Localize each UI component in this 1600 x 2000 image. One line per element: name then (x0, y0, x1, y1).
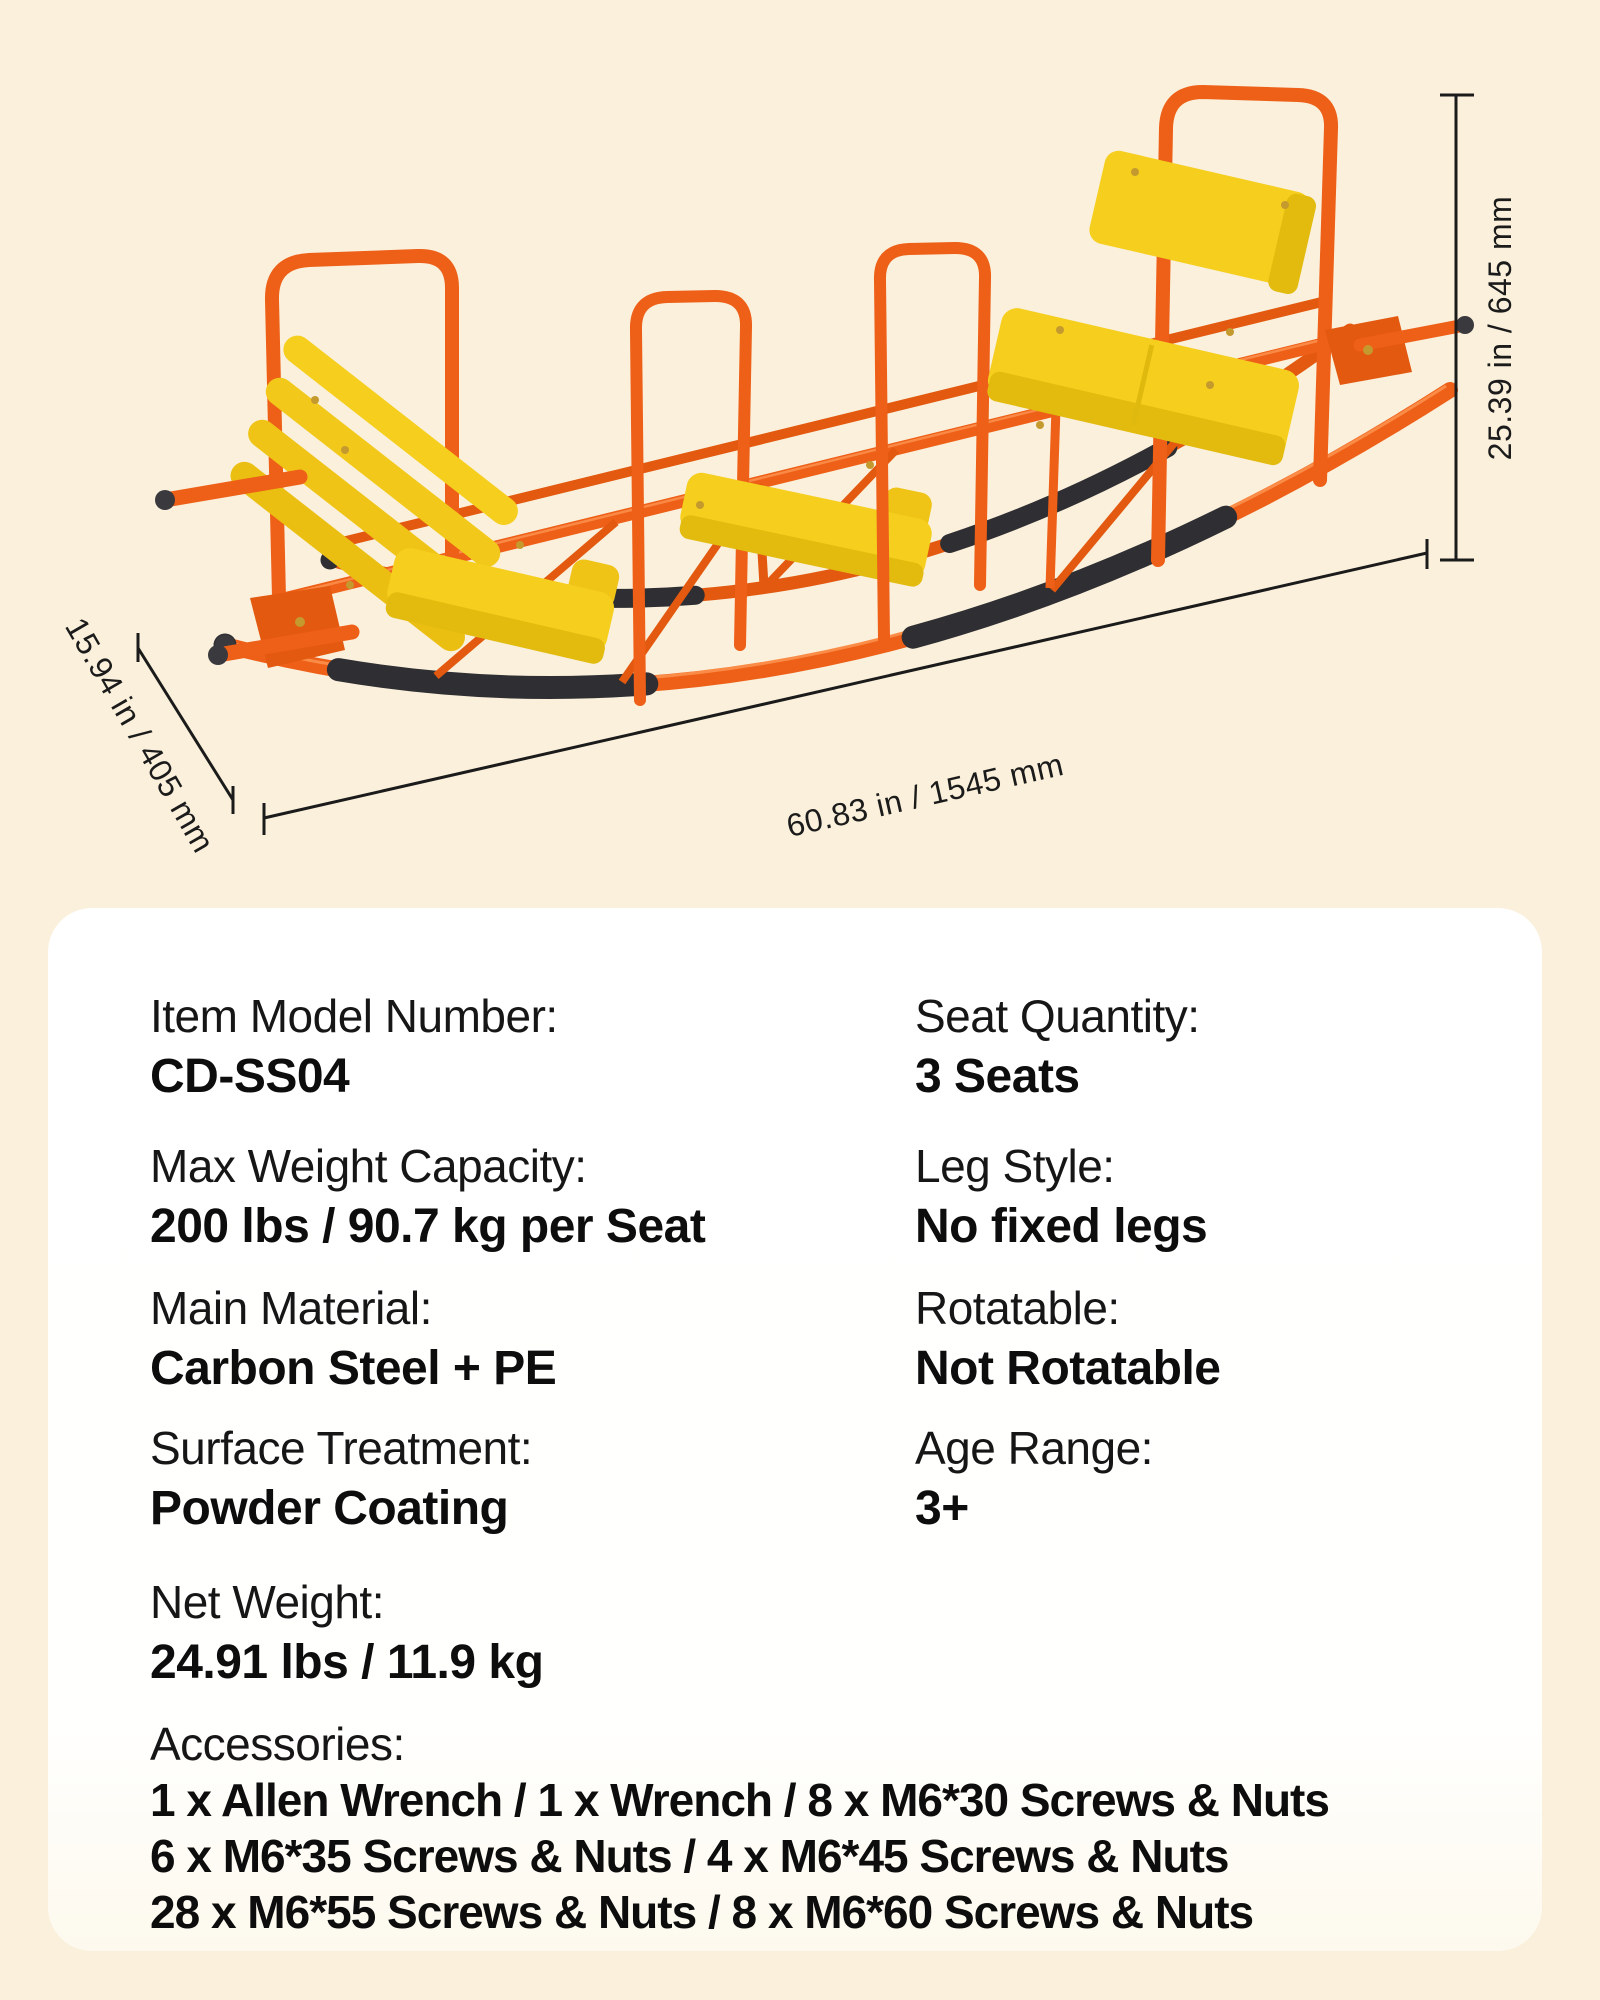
spec-value: Powder Coating (150, 1480, 532, 1538)
spec-value: Not Rotatable (915, 1340, 1221, 1398)
accessories-line-2: 6 x M6*35 Screws & Nuts / 4 x M6*45 Scre… (150, 1828, 1329, 1884)
spec-label: Accessories: (150, 1716, 1329, 1772)
right-backrest-panel (1085, 148, 1318, 296)
spec-max-weight: Max Weight Capacity: 200 lbs / 90.7 kg p… (150, 1138, 705, 1256)
product-illustration: 25.39 in / 645 mm 60.83 in / 1545 mm 15.… (0, 0, 1600, 908)
spec-rotatable: Rotatable: Not Rotatable (915, 1280, 1221, 1398)
spec-net-weight: Net Weight: 24.91 lbs / 11.9 kg (150, 1574, 543, 1692)
spec-age-range: Age Range: 3+ (915, 1420, 1153, 1538)
spec-value: 3+ (915, 1480, 1153, 1538)
spec-panel: Item Model Number: CD-SS04 Max Weight Ca… (48, 908, 1542, 1951)
spec-main-material: Main Material: Carbon Steel + PE (150, 1280, 556, 1398)
accessories-line-3: 28 x M6*55 Screws & Nuts / 8 x M6*60 Scr… (150, 1884, 1329, 1940)
spec-label: Surface Treatment: (150, 1420, 532, 1476)
spec-label: Age Range: (915, 1420, 1153, 1476)
spec-label: Net Weight: (150, 1574, 543, 1630)
accessories-line-1: 1 x Allen Wrench / 1 x Wrench / 8 x M6*3… (150, 1772, 1329, 1828)
product-hero: 25.39 in / 645 mm 60.83 in / 1545 mm 15.… (0, 0, 1600, 908)
right-double-seat (983, 305, 1302, 467)
handle-end-cap (155, 490, 175, 510)
spec-label: Seat Quantity: (915, 988, 1200, 1044)
spec-label: Main Material: (150, 1280, 556, 1336)
spec-value: No fixed legs (915, 1198, 1207, 1256)
spec-label: Max Weight Capacity: (150, 1138, 705, 1194)
spec-label: Rotatable: (915, 1280, 1221, 1336)
spec-label: Item Model Number: (150, 988, 558, 1044)
length-dimension-label: 60.83 in / 1545 mm (783, 746, 1067, 844)
spec-surface-treatment: Surface Treatment: Powder Coating (150, 1420, 532, 1538)
spec-value: 24.91 lbs / 11.9 kg (150, 1634, 543, 1692)
spec-item-model: Item Model Number: CD-SS04 (150, 988, 558, 1106)
handle-end-cap (1456, 316, 1474, 334)
height-dimension-label: 25.39 in / 645 mm (1482, 196, 1518, 461)
page: 25.39 in / 645 mm 60.83 in / 1545 mm 15.… (0, 0, 1600, 2000)
spec-label: Leg Style: (915, 1138, 1207, 1194)
spec-value: 200 lbs / 90.7 kg per Seat (150, 1198, 705, 1256)
spec-leg-style: Leg Style: No fixed legs (915, 1138, 1207, 1256)
spec-value: Carbon Steel + PE (150, 1340, 556, 1398)
spec-seat-quantity: Seat Quantity: 3 Seats (915, 988, 1200, 1106)
handle-end-cap (208, 645, 228, 665)
spec-value: 3 Seats (915, 1048, 1200, 1106)
right-seat (880, 92, 1331, 640)
spec-accessories: Accessories: 1 x Allen Wrench / 1 x Wren… (150, 1716, 1329, 1940)
spec-value: CD-SS04 (150, 1048, 558, 1106)
